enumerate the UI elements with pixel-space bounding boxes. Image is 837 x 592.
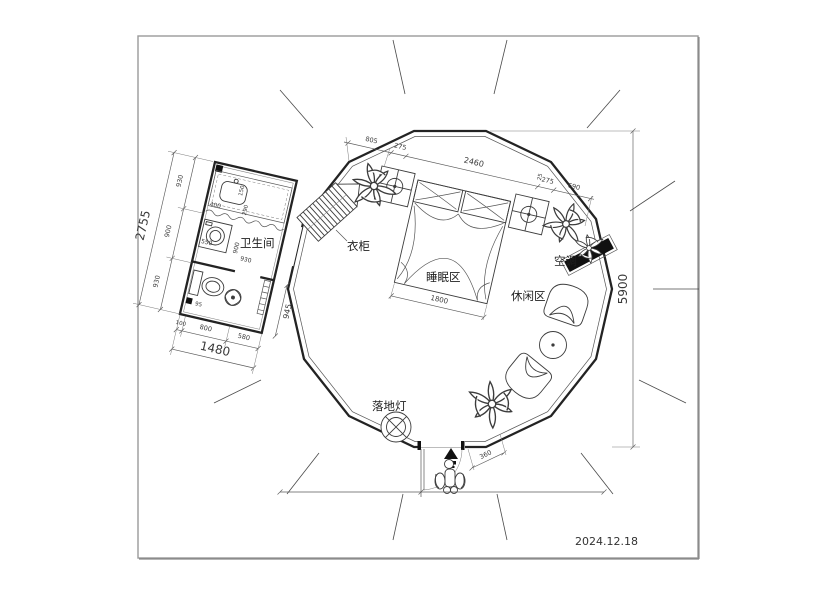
dim-930b: 930 — [151, 274, 162, 288]
label-leisure-area: 休闲区 — [511, 289, 546, 303]
entrance — [418, 438, 466, 497]
dim-945: 945 — [281, 303, 293, 320]
dim-5900: 5900 — [616, 274, 630, 305]
dim-2755: 2755 — [133, 209, 154, 242]
label-floor-lamp: 落地灯 — [372, 400, 407, 413]
dim-805: 805 — [364, 135, 378, 146]
dim-580: 580 — [237, 332, 251, 343]
label-wardrobe: 衣柜 — [347, 239, 370, 253]
door-jamb-left — [418, 441, 422, 450]
dim-100: 100 — [175, 320, 187, 328]
label-sleeping-area: 睡眠区 — [426, 271, 461, 284]
door-jamb-right — [461, 441, 465, 450]
floor-lamp — [381, 412, 411, 442]
person-figure — [435, 460, 465, 494]
floorplan-canvas: 400 150 290 550 900 930 95 — [0, 0, 837, 592]
dim-1480: 1480 — [199, 339, 232, 360]
drawing-date: 2024.12.18 — [575, 535, 638, 548]
dim-800: 800 — [199, 323, 213, 334]
nightstand-right — [508, 194, 549, 235]
dim-900: 900 — [163, 224, 174, 238]
label-air-conditioner: 空调 — [554, 254, 577, 268]
dim-930a: 930 — [175, 174, 186, 188]
floorplan-drawing: 400 150 290 550 900 930 95 — [0, 0, 837, 592]
label-bathroom: 卫生间 — [240, 236, 275, 250]
washing-machine — [199, 219, 233, 253]
